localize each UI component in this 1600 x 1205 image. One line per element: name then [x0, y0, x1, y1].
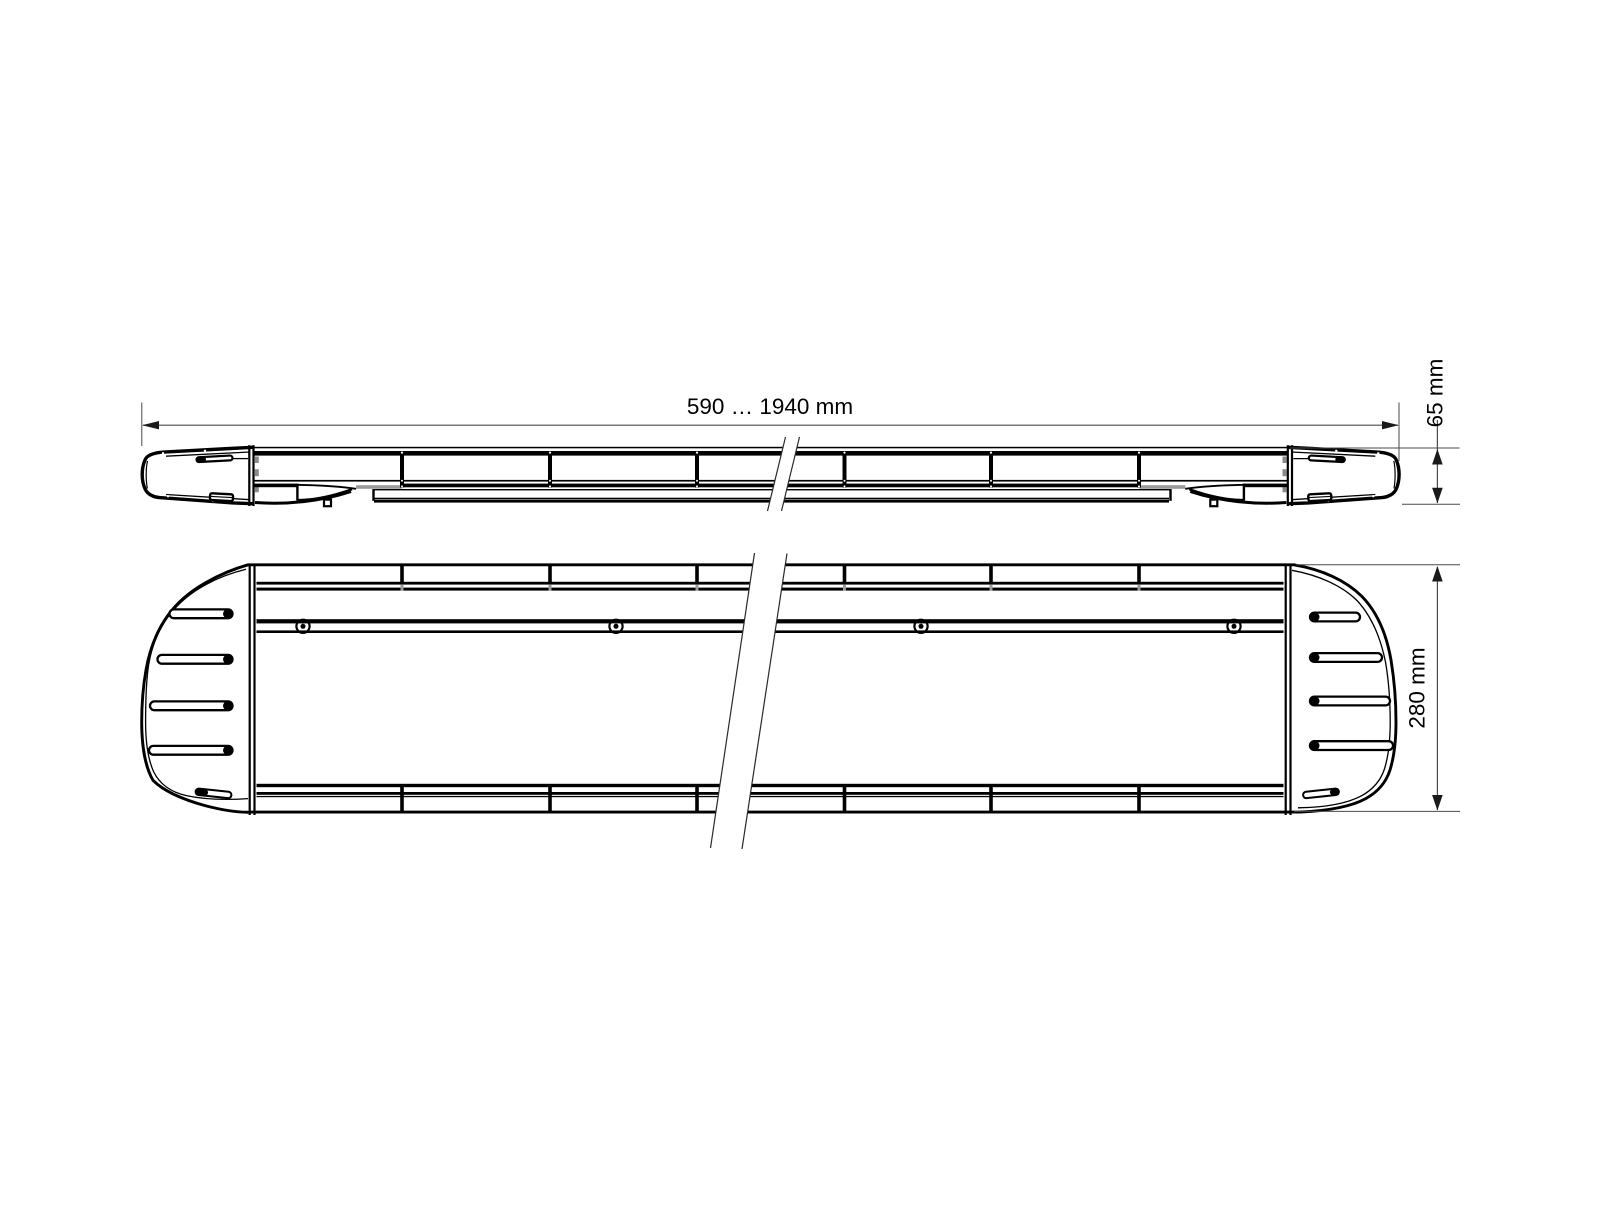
svg-text:65 mm: 65 mm	[1423, 359, 1448, 428]
svg-text:280 mm: 280 mm	[1405, 647, 1430, 728]
svg-text:590 … 1940 mm: 590 … 1940 mm	[687, 394, 853, 419]
